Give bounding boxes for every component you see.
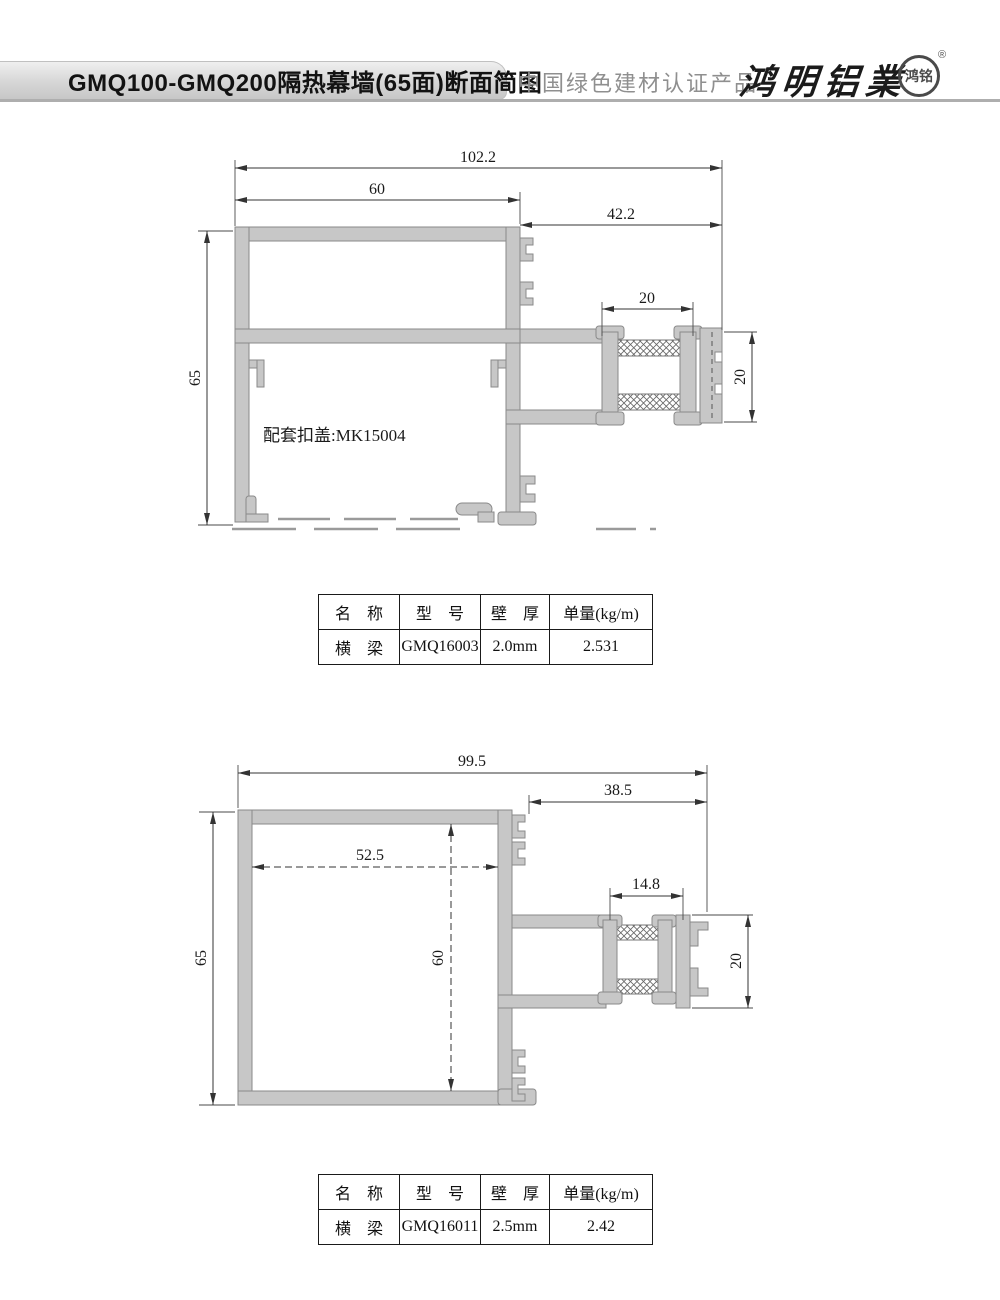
spec-table-1: 名 称 型 号 壁 厚 单量(kg/m) 横 梁 GMQ16003 2.0mm … xyxy=(318,594,653,665)
plate-hook-bottom xyxy=(690,968,708,996)
spec-table-2: 名 称 型 号 壁 厚 单量(kg/m) 横 梁 GMQ16011 2.5mm … xyxy=(318,1174,653,1245)
dim-inner-width-2: 52.5 xyxy=(356,847,384,864)
brand-seal-text: 鸿铭 xyxy=(905,66,933,86)
dim-break-height-1: 20 xyxy=(732,369,749,385)
dim-height-2: 65 xyxy=(193,950,210,966)
catalog-page: GMQ100-GMQ200隔热幕墙(65面)断面简图 中国绿色建材认证产品 鸿明… xyxy=(0,0,1000,1300)
page-title: GMQ100-GMQ200隔热幕墙(65面)断面简图 xyxy=(0,63,542,98)
dim-right-width-2: 38.5 xyxy=(604,782,632,799)
drawing-1: 102.2 60 42.2 65 20 20 配套扣盖:MK15004 xyxy=(140,140,820,560)
dim-break-width-2: 14.8 xyxy=(632,876,660,893)
title-banner: GMQ100-GMQ200隔热幕墙(65面)断面简图 xyxy=(0,61,507,100)
glazing-hook-top-2 xyxy=(520,282,533,305)
col-header-model-1: 型 号 xyxy=(400,595,481,630)
brand-seal-icon: 鸿铭 xyxy=(898,55,940,97)
col-header-model-2: 型 号 xyxy=(400,1175,481,1210)
registered-trademark-icon: ® xyxy=(938,49,946,61)
dim-break-width-1: 20 xyxy=(639,290,655,307)
glazing-hook-top-3 xyxy=(512,815,525,838)
dim-overall-width-2: 99.5 xyxy=(458,753,486,770)
dim-right-width-1: 42.2 xyxy=(607,206,635,223)
col-header-name-1: 名 称 xyxy=(319,595,400,630)
col-header-thickness-2: 壁 厚 xyxy=(481,1175,550,1210)
cell-thickness-2: 2.5mm xyxy=(481,1210,550,1245)
dim-break-height-2: 20 xyxy=(728,953,745,969)
profile-note: 配套扣盖:MK15004 xyxy=(263,426,406,445)
cell-name-2: 横 梁 xyxy=(319,1210,400,1245)
header-divider xyxy=(0,99,1000,102)
col-header-weight-2: 单量(kg/m) xyxy=(550,1175,653,1210)
glazing-hook-bottom-3 xyxy=(512,1050,525,1073)
profile-2-section xyxy=(238,810,608,1105)
pressure-plate-2 xyxy=(676,915,690,1008)
certification-text: 中国绿色建材认证产品 xyxy=(518,66,758,98)
cell-name-1: 横 梁 xyxy=(319,630,400,665)
cell-model-2: GMQ16011 xyxy=(400,1210,481,1245)
profile-1-section xyxy=(232,227,656,529)
dim-inner-height-2: 60 xyxy=(430,950,447,966)
thermal-break-1 xyxy=(596,326,722,425)
plate-hook-top xyxy=(690,922,708,946)
glazing-hook-bottom-1 xyxy=(520,476,535,502)
glazing-hook-top-1 xyxy=(520,238,533,261)
dim-height-1: 65 xyxy=(187,370,204,386)
brand-logo: 鸿明铝業 xyxy=(737,54,910,105)
col-header-weight-1: 单量(kg/m) xyxy=(550,595,653,630)
col-header-name-2: 名 称 xyxy=(319,1175,400,1210)
glazing-hook-top-4 xyxy=(512,842,525,865)
drawing-2: 99.5 38.5 65 52.5 60 14.8 20 xyxy=(140,740,820,1170)
col-header-thickness-1: 壁 厚 xyxy=(481,595,550,630)
dim-top-width-1: 60 xyxy=(369,181,385,198)
thermal-break-2 xyxy=(598,915,708,1008)
cell-weight-1: 2.531 xyxy=(550,630,653,665)
cell-thickness-1: 2.0mm xyxy=(481,630,550,665)
cell-model-1: GMQ16003 xyxy=(400,630,481,665)
cell-weight-2: 2.42 xyxy=(550,1210,653,1245)
pressure-plate-1 xyxy=(700,328,722,423)
dim-overall-width-1: 102.2 xyxy=(460,149,496,166)
